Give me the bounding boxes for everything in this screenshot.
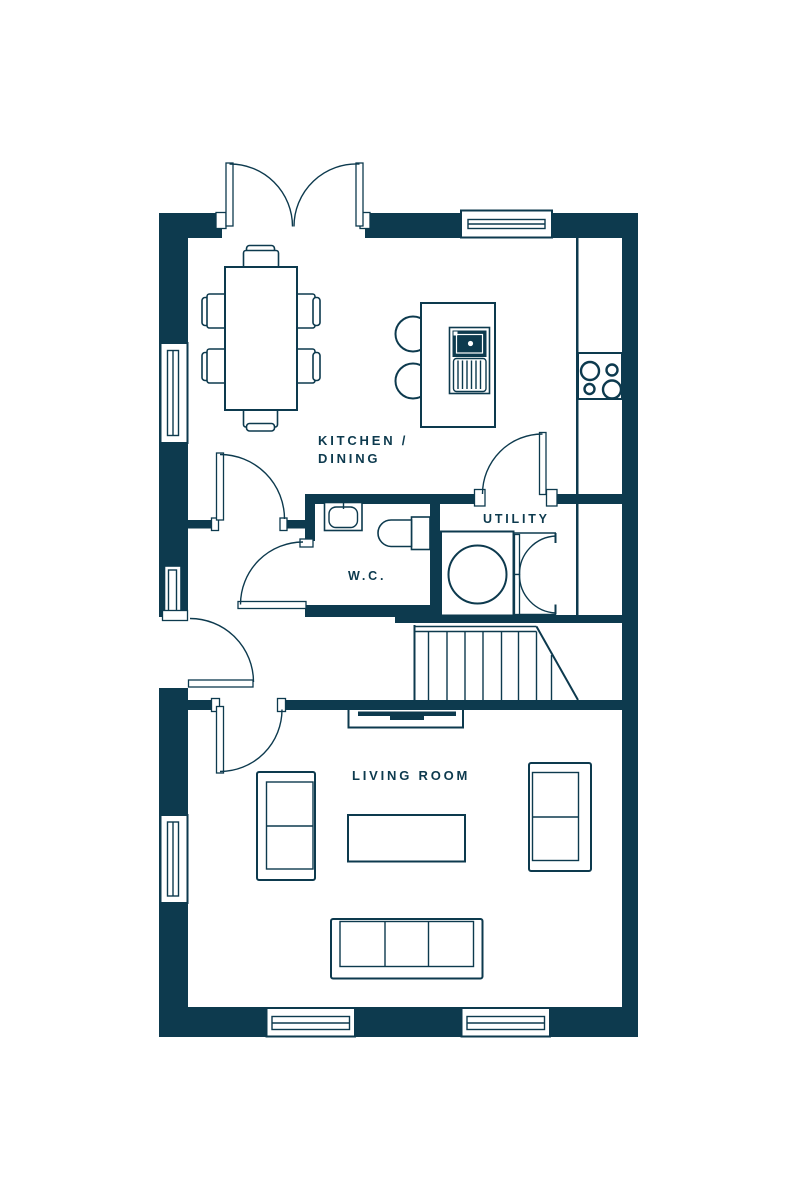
window-left-upper <box>161 343 188 443</box>
window-bottom-left <box>267 1008 356 1037</box>
window-left-side <box>165 566 182 617</box>
door-leaf <box>356 163 363 226</box>
window-bottom-right <box>462 1008 551 1037</box>
tv-unit <box>349 709 464 728</box>
floor-plan-canvas: KITCHEN / DINING UTILITY W.C. LIVING ROO… <box>0 0 800 1200</box>
stair-treads <box>429 632 537 701</box>
french-doors <box>216 163 370 229</box>
door-leaf <box>217 453 224 520</box>
window-top <box>461 211 552 238</box>
door-leaf <box>189 680 254 687</box>
washing-machine <box>441 532 514 616</box>
dining-table <box>225 267 297 410</box>
door-front <box>163 611 254 688</box>
door-utility <box>475 433 558 507</box>
door-jamb <box>475 490 486 507</box>
floor-plan: KITCHEN / DINING UTILITY W.C. LIVING ROO… <box>0 0 800 1200</box>
toilet-cistern <box>412 517 431 550</box>
wc-basin <box>325 503 363 531</box>
dining-chair <box>247 424 275 432</box>
door-living-room <box>212 699 286 774</box>
staircase <box>414 625 578 700</box>
door-swing-arc <box>220 710 282 772</box>
door-leaf <box>238 602 306 609</box>
kitchen-dining-label-line2: DINING <box>318 451 380 466</box>
door-jamb <box>280 518 287 531</box>
utility-cupboard <box>514 533 557 615</box>
door-jamb <box>216 213 226 229</box>
door-swing-arc <box>241 542 304 605</box>
wc-toilet <box>378 517 430 550</box>
door-swing-arc <box>519 575 556 614</box>
island-sink <box>450 328 490 394</box>
door-swing-arc <box>519 536 556 575</box>
door-jamb <box>163 611 188 621</box>
door-jamb <box>547 490 558 507</box>
door-swing-arc <box>294 164 360 227</box>
door-swing-arc <box>220 455 285 520</box>
tv-stand <box>390 716 424 721</box>
door-swing-arc <box>230 164 293 227</box>
door-swing-arc <box>190 619 254 683</box>
door-swing-arc <box>483 434 543 494</box>
sofa-right <box>529 763 591 871</box>
sofa-left <box>257 772 315 880</box>
living-room-label: LIVING ROOM <box>352 768 470 783</box>
dining-chair <box>313 353 320 381</box>
wc-label: W.C. <box>348 569 386 583</box>
cupboard-door-leaf <box>515 535 520 575</box>
sofa-bottom <box>331 919 483 979</box>
door-leaf <box>217 707 224 774</box>
hob <box>578 353 622 399</box>
toilet-bowl <box>378 520 412 547</box>
window-left-lower <box>161 815 188 903</box>
door-leaf <box>540 433 547 495</box>
kitchen-island <box>421 303 495 427</box>
stair-break-line <box>537 627 579 701</box>
door-wc <box>238 539 313 609</box>
dining-chair <box>313 298 320 326</box>
cupboard-door-leaf <box>515 575 520 615</box>
worktop <box>576 238 579 615</box>
door-jamb <box>300 539 313 547</box>
kitchen-dining-label-line1: KITCHEN / <box>318 433 408 448</box>
tv-icon <box>358 712 456 717</box>
tap-icon <box>468 341 473 346</box>
door-kitchen <box>212 453 288 531</box>
door-leaf <box>226 163 233 226</box>
coffee-table <box>348 815 465 862</box>
utility-label: UTILITY <box>483 512 550 526</box>
